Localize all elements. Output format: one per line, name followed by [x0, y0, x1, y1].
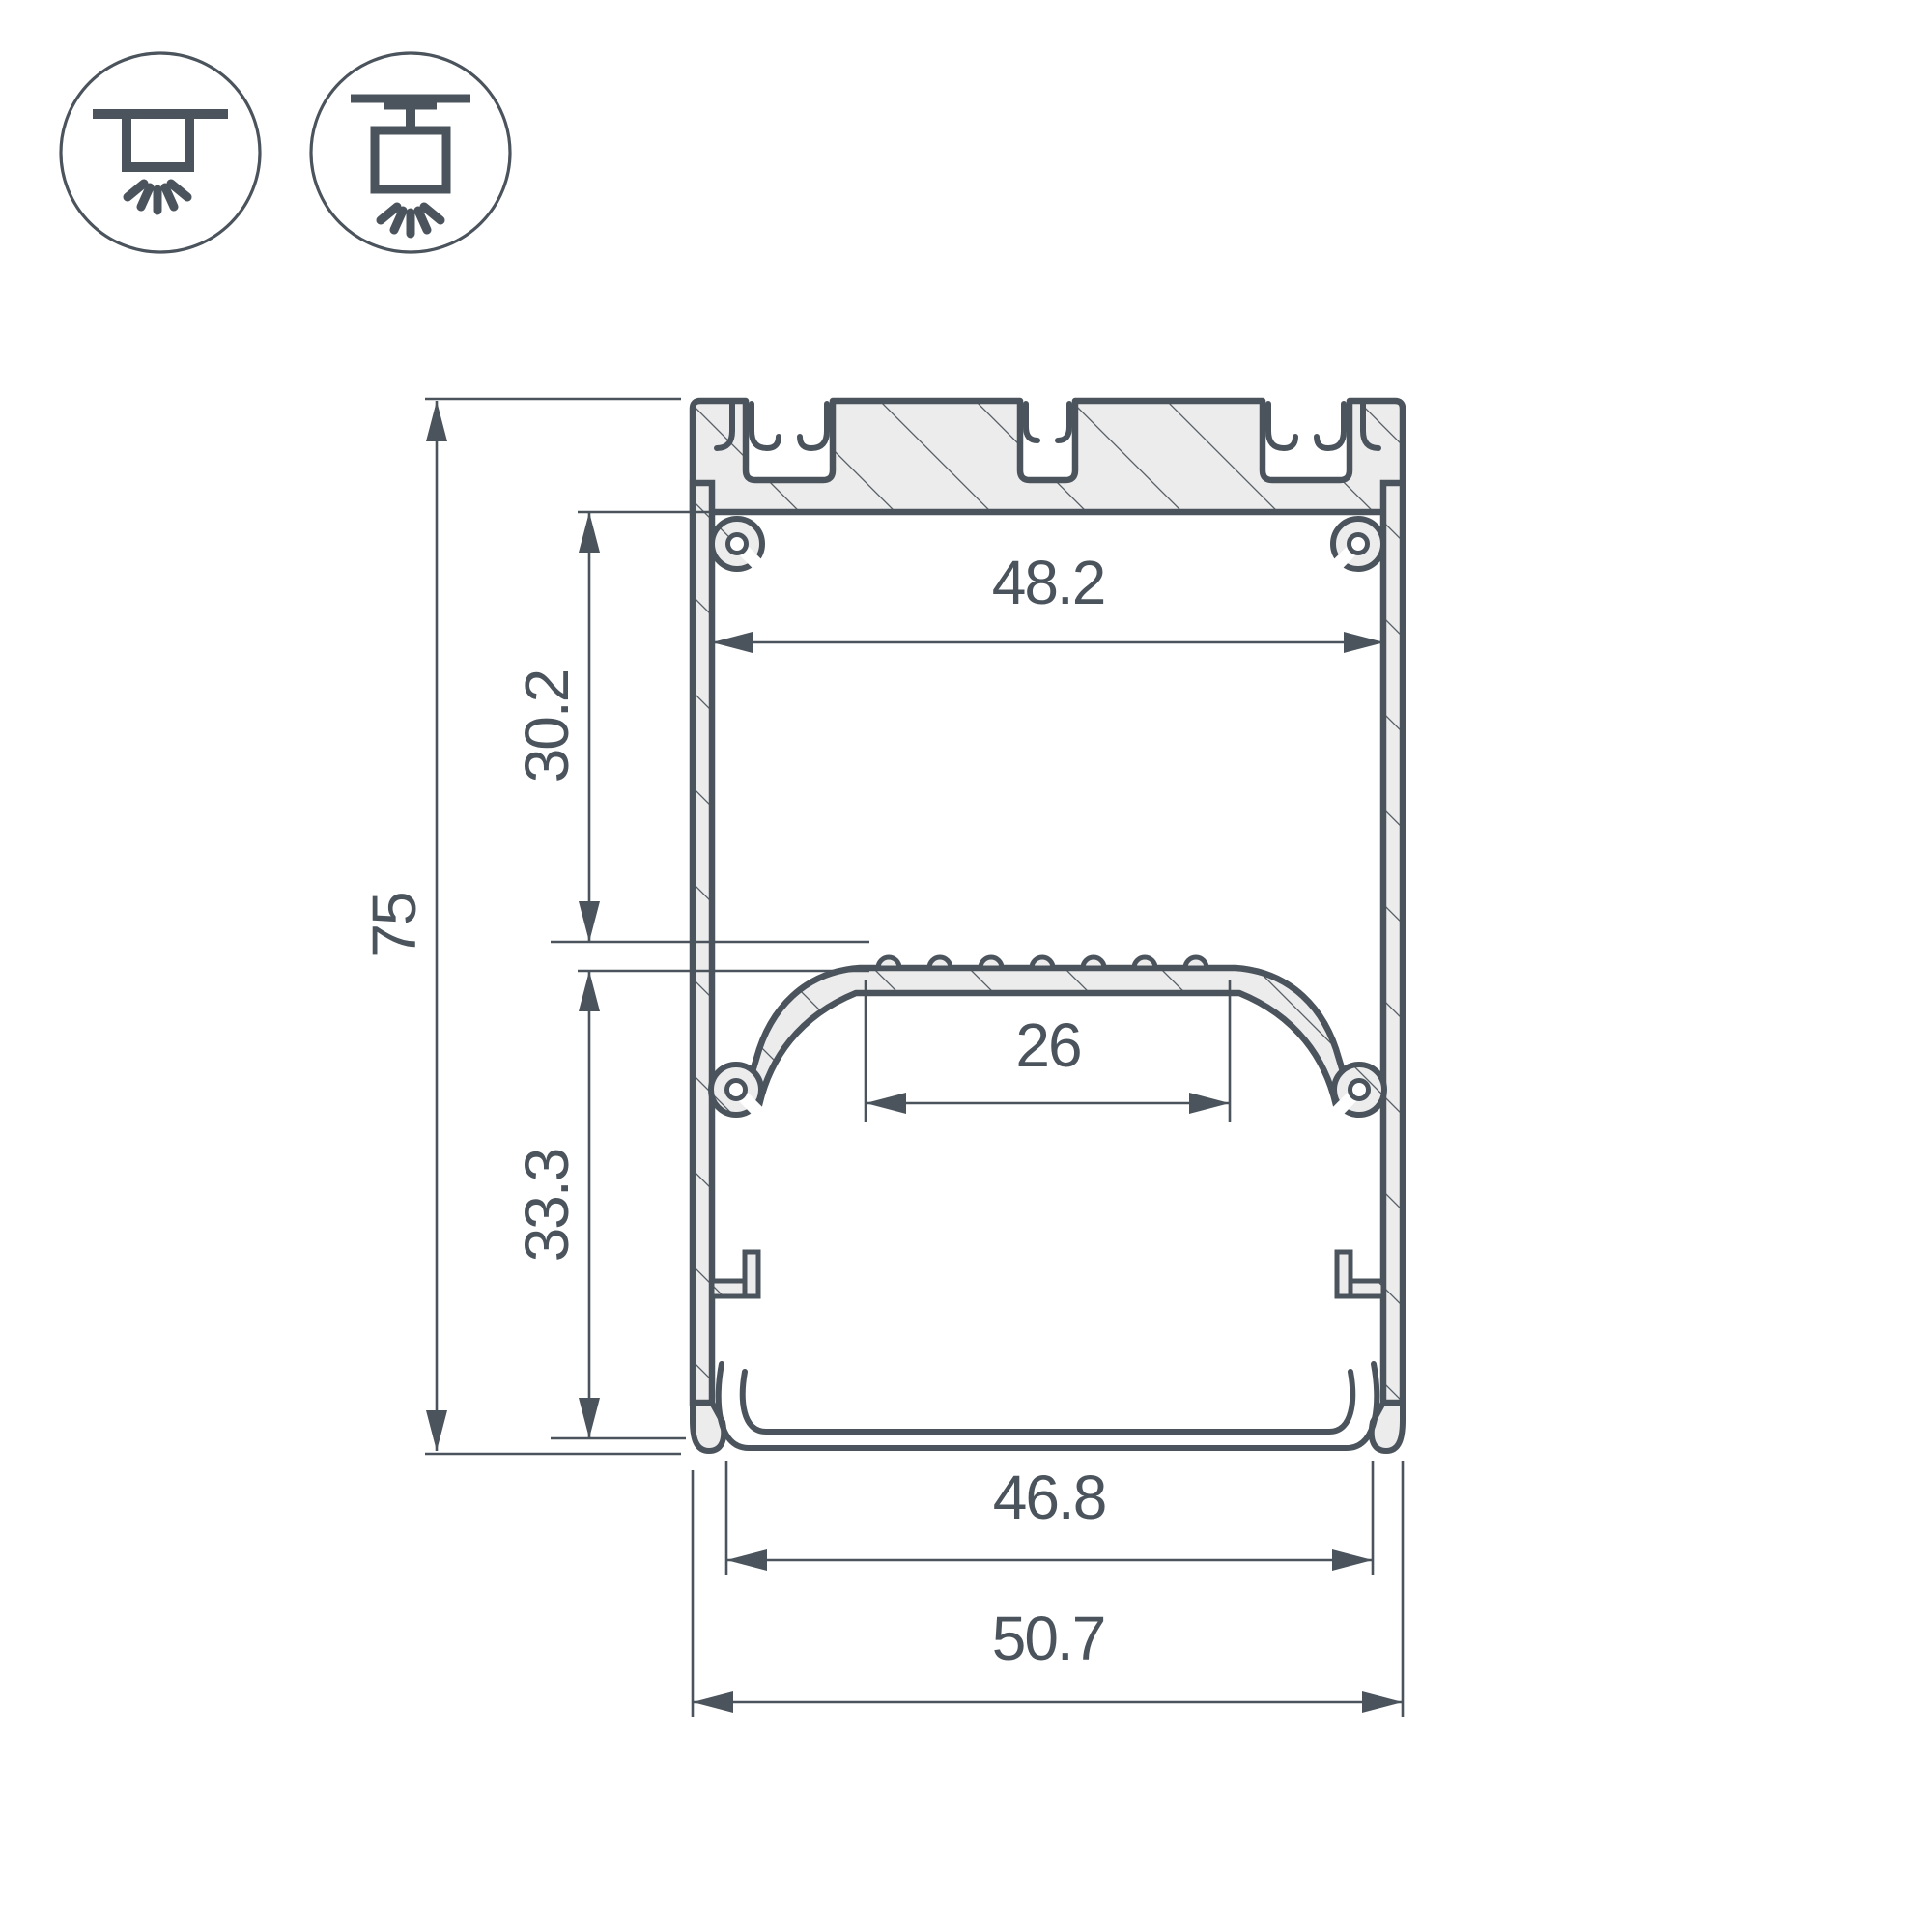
dim-inner-top-width-label: 48.2: [992, 548, 1105, 617]
pendant-mount-icon: [311, 53, 510, 252]
dim-upper-cavity-height-label: 30.2: [512, 670, 582, 783]
dim-overall-width-label: 50.7: [992, 1604, 1105, 1673]
dim-overall-height: [425, 399, 681, 1454]
dim-overall-height-label: 75: [359, 893, 429, 957]
profile-drawing: 75 30.2 33.3 48.2 26 46.8 50.7: [0, 0, 1932, 1932]
surface-mount-icon: [61, 53, 260, 252]
slot-hook-curls: [717, 404, 1378, 448]
dim-lower-cavity-height-label: 33.3: [512, 1150, 582, 1263]
dim-inner-top-width: [712, 632, 1384, 653]
profile-top-cap: [693, 401, 1403, 512]
diffuser: [719, 1364, 1378, 1448]
technical-drawing-page: 75 30.2 33.3 48.2 26 46.8 50.7: [0, 0, 1932, 1932]
profile-right-wall: [1383, 483, 1403, 1403]
dim-led-platform-width-label: 26: [1015, 1010, 1080, 1080]
dim-bottom-opening-width-label: 46.8: [993, 1463, 1106, 1532]
screw-boss-top-left: [712, 519, 770, 577]
led-shelf-fins: [878, 957, 1207, 968]
screw-boss-top-right: [1325, 519, 1383, 577]
dimensions: [425, 399, 1403, 1717]
wall-hooks: [712, 1252, 1383, 1296]
